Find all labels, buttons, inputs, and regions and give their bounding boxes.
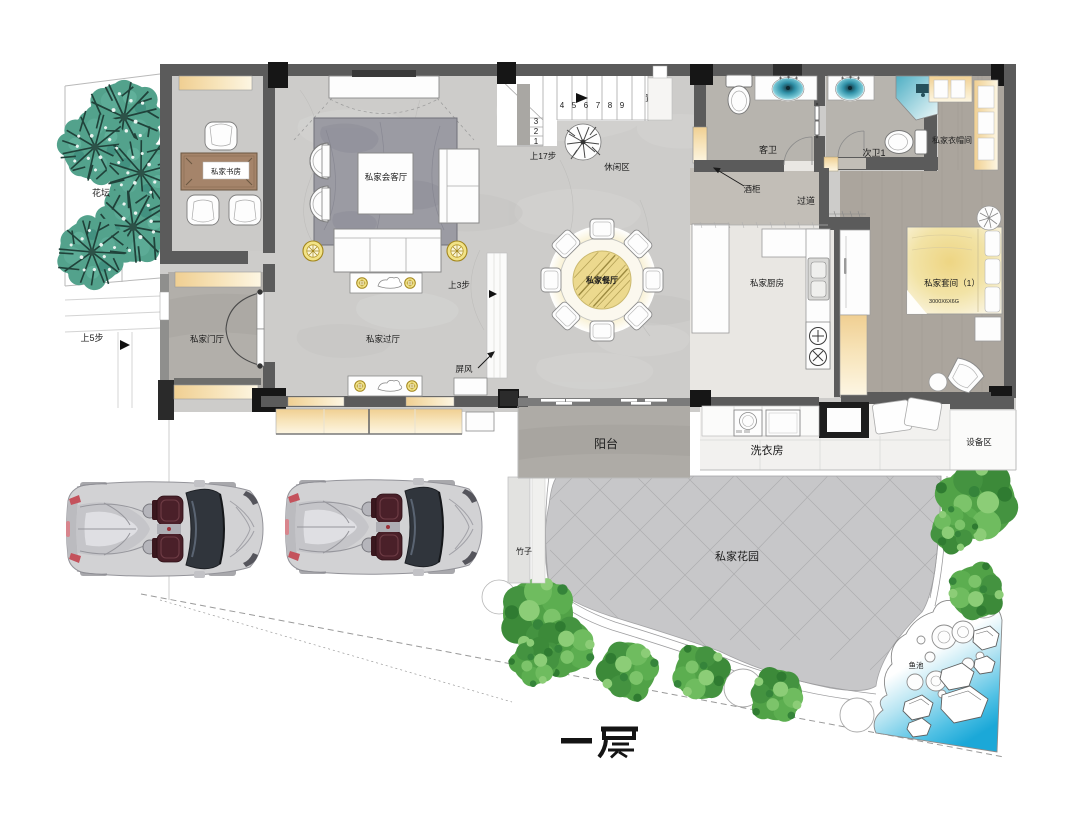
- svg-text:私家花园: 私家花园: [715, 549, 759, 563]
- svg-text:洗衣房: 洗衣房: [751, 443, 784, 457]
- svg-text:私家套间（1）: 私家套间（1）: [924, 278, 980, 288]
- svg-text:私家会客厅: 私家会客厅: [365, 172, 408, 182]
- svg-text:阳台: 阳台: [594, 436, 618, 451]
- svg-text:8: 8: [608, 101, 613, 110]
- svg-text:私家书房: 私家书房: [211, 166, 241, 176]
- svg-text:7: 7: [596, 101, 601, 110]
- svg-text:私家衣帽间: 私家衣帽间: [932, 135, 972, 145]
- svg-text:上3步: 上3步: [448, 280, 470, 290]
- svg-text:鱼池: 鱼池: [909, 660, 924, 670]
- svg-text:6: 6: [584, 101, 589, 110]
- svg-text:私家过厅: 私家过厅: [366, 334, 401, 344]
- svg-text:休闲区: 休闲区: [604, 162, 630, 172]
- svg-text:上17步: 上17步: [530, 151, 556, 161]
- svg-text:1: 1: [534, 137, 539, 146]
- svg-text:过道: 过道: [797, 195, 815, 206]
- svg-text:4: 4: [560, 101, 565, 110]
- svg-text:私家餐厅: 私家餐厅: [585, 275, 618, 285]
- svg-text:酒柜: 酒柜: [743, 184, 761, 194]
- svg-text:客卫: 客卫: [759, 144, 777, 155]
- svg-text:花坛: 花坛: [92, 187, 110, 198]
- svg-text:屏风: 屏风: [455, 364, 473, 374]
- svg-text:设备区: 设备区: [966, 437, 992, 447]
- svg-text:私家厨房: 私家厨房: [750, 278, 784, 288]
- svg-text:竹子: 竹子: [516, 546, 532, 556]
- svg-text:私家门厅: 私家门厅: [190, 334, 225, 344]
- svg-text:3000X6X6G: 3000X6X6G: [929, 299, 959, 305]
- svg-text:3: 3: [534, 117, 539, 126]
- svg-text:9: 9: [620, 101, 625, 110]
- svg-text:次卫1: 次卫1: [862, 147, 885, 158]
- svg-text:上5步: 上5步: [80, 333, 103, 343]
- svg-text:2: 2: [534, 127, 539, 136]
